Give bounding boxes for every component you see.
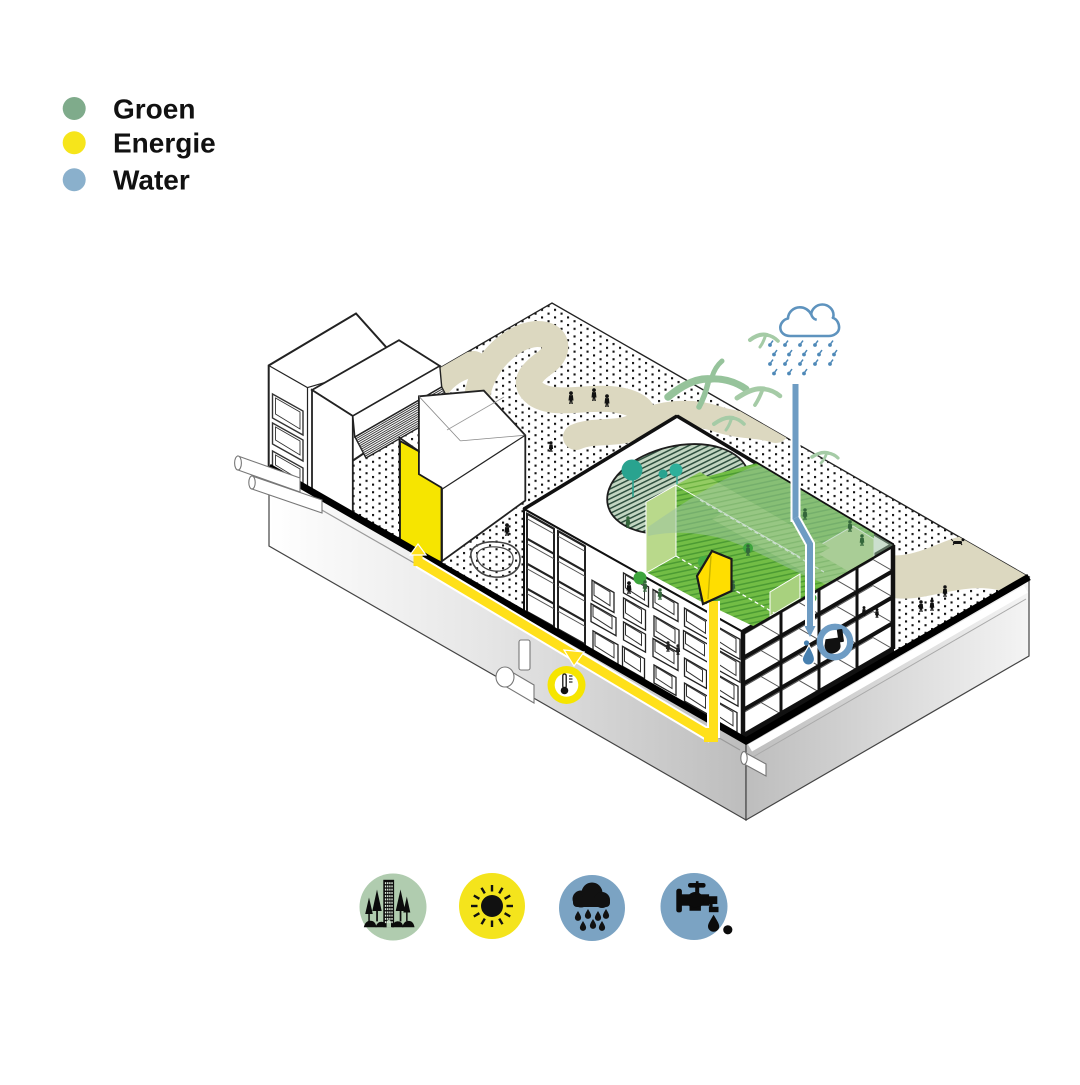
svg-text:Energie: Energie [113, 128, 216, 159]
svg-text:Groen: Groen [113, 94, 195, 125]
svg-text:Water: Water [113, 165, 190, 196]
